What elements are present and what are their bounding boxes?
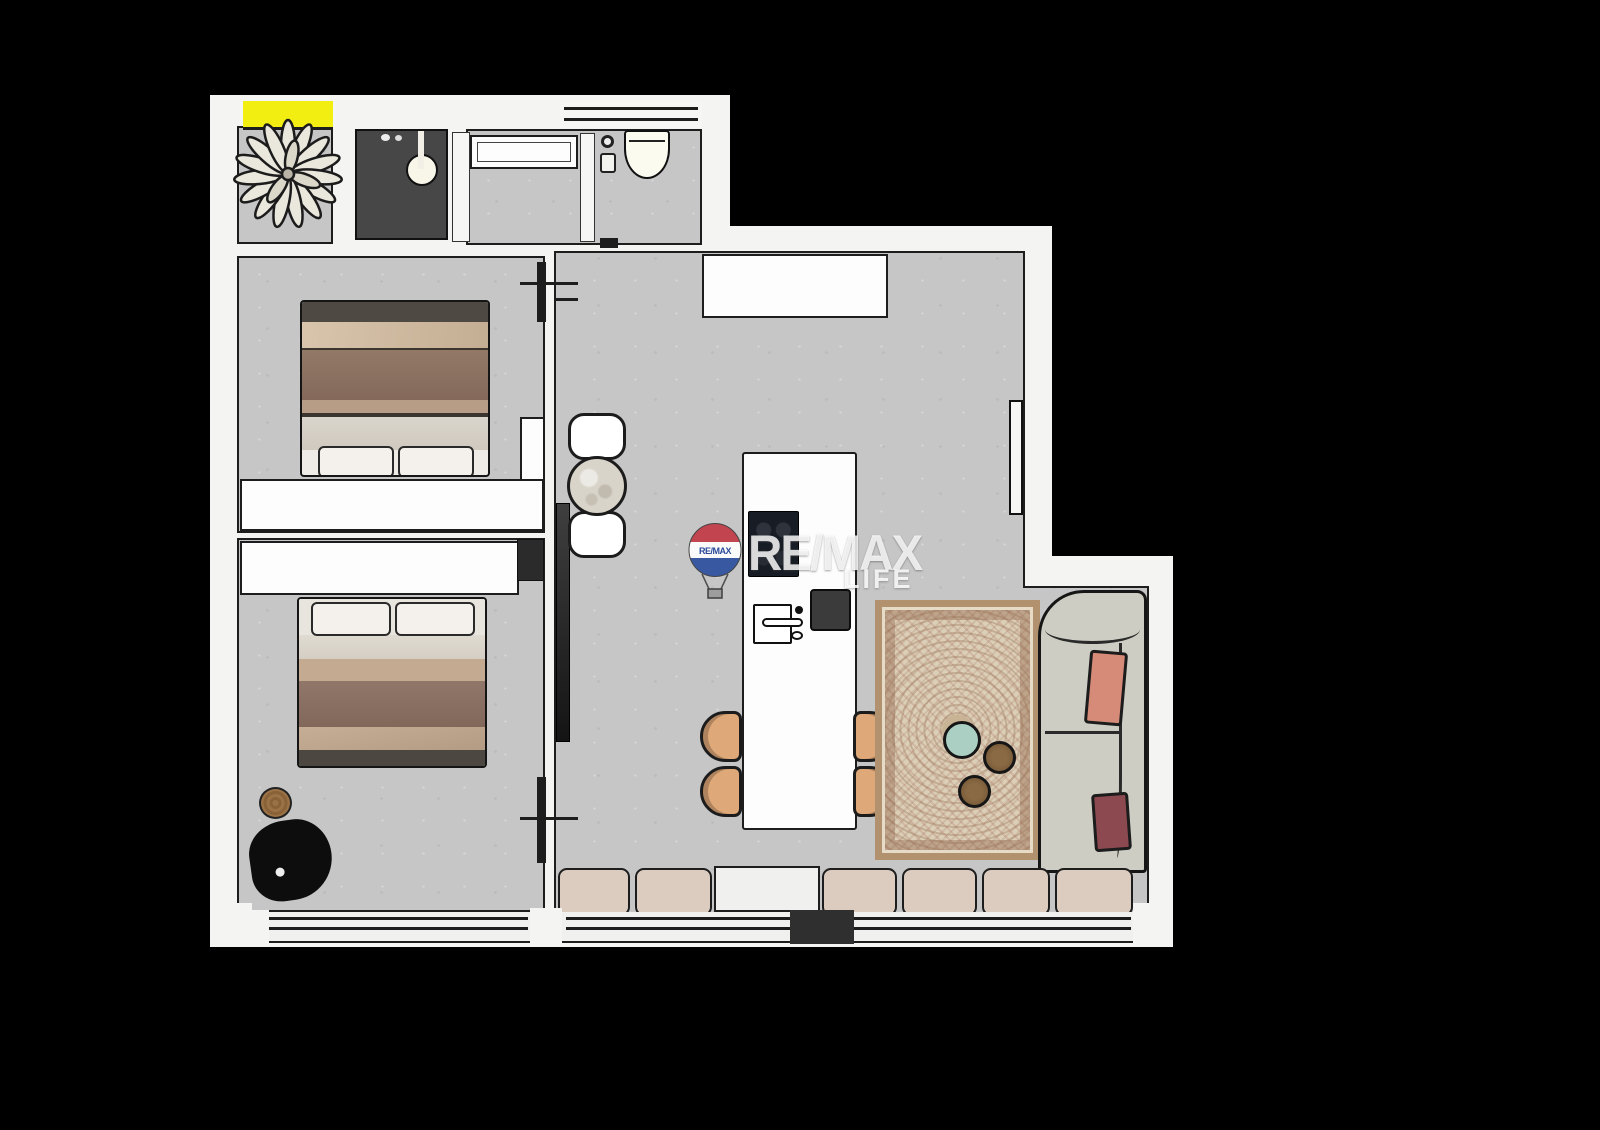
faucet-icon bbox=[418, 131, 424, 169]
vanity-unit bbox=[355, 129, 448, 240]
bed-1 bbox=[300, 300, 490, 477]
soap-dot bbox=[395, 135, 402, 141]
bed-headboard bbox=[302, 302, 488, 322]
bedroom2-door-swing-mark bbox=[520, 817, 578, 820]
bathroom-window bbox=[560, 101, 702, 128]
window-mullion bbox=[530, 908, 562, 944]
floor-cushion bbox=[902, 868, 977, 916]
toilet-roll-icon bbox=[601, 135, 614, 148]
floor-cushion bbox=[558, 868, 630, 916]
bed-sheet bbox=[299, 659, 485, 681]
sofa-pillow-maroon bbox=[1091, 792, 1132, 852]
sofa-seat-divider bbox=[1045, 731, 1120, 734]
kitchen-counter bbox=[702, 254, 888, 318]
wall-corner-pillar bbox=[210, 903, 252, 947]
bed-pillow bbox=[318, 446, 394, 477]
bed-footboard bbox=[299, 750, 485, 766]
bed-fold bbox=[302, 400, 488, 413]
window-glass-line bbox=[251, 917, 528, 920]
bed-pillow bbox=[311, 602, 391, 636]
bathtub bbox=[470, 135, 578, 169]
wardrobe-column bbox=[520, 417, 545, 481]
window-band-bedroom bbox=[247, 912, 532, 943]
beanbag-button bbox=[275, 867, 285, 877]
bed-blanket bbox=[299, 681, 485, 727]
wardrobe-bedroom1 bbox=[240, 479, 544, 531]
side-stool bbox=[259, 787, 292, 819]
floor-cushion bbox=[635, 868, 712, 916]
sofa-armrest-line bbox=[1045, 615, 1140, 644]
bar-stool bbox=[700, 711, 742, 762]
kitchen-island bbox=[742, 452, 857, 830]
bedroom1-door-swing-mark bbox=[520, 282, 578, 285]
coffee-table-mint bbox=[943, 721, 981, 759]
window-glass-line bbox=[564, 107, 698, 110]
watermark-sub-text: LIFE bbox=[843, 564, 914, 595]
sofa-pillow-salmon bbox=[1084, 649, 1128, 726]
bed-sheet bbox=[302, 322, 488, 348]
balcony-door-threshold bbox=[790, 910, 854, 944]
coffee-table-wood bbox=[983, 741, 1016, 774]
window-glass-line bbox=[251, 927, 528, 930]
shower-partition bbox=[452, 132, 470, 242]
wall-corner-pillar bbox=[1133, 903, 1173, 947]
bar-stool bbox=[700, 766, 742, 817]
kitchen-wall-mark bbox=[556, 298, 578, 301]
faucet-knob bbox=[795, 606, 803, 614]
sofa bbox=[1038, 590, 1147, 873]
floor-cushion bbox=[1055, 868, 1133, 916]
glass-divider bbox=[580, 133, 595, 242]
bed-quilt bbox=[299, 635, 485, 659]
bed-2 bbox=[297, 597, 487, 768]
floorplan-canvas: RE/MAX RE/MAX LIFE bbox=[0, 0, 1600, 1130]
wardrobe-bedroom2 bbox=[240, 541, 519, 595]
wardrobe-dark-cabinet bbox=[517, 539, 544, 581]
bathroom-accessory bbox=[600, 153, 616, 173]
dining-chair bbox=[568, 413, 626, 460]
faucet-drain bbox=[791, 631, 803, 640]
plant-icon bbox=[232, 112, 344, 230]
door-swing-area bbox=[714, 866, 820, 912]
remax-balloon-logo: RE/MAX bbox=[686, 523, 744, 603]
dining-chair bbox=[568, 511, 626, 558]
bedroom2-door-leaf bbox=[537, 777, 546, 863]
bed-pillow bbox=[398, 446, 474, 477]
bed-blanket bbox=[302, 348, 488, 400]
island-appliance bbox=[810, 589, 851, 631]
window-glass-line bbox=[564, 118, 698, 121]
bedroom1-door-leaf bbox=[537, 262, 546, 322]
dining-table bbox=[567, 456, 627, 516]
radiator bbox=[1009, 400, 1023, 515]
bathroom-door-mark bbox=[600, 238, 618, 248]
toilet-seat-line bbox=[629, 140, 665, 142]
coffee-table-wood bbox=[958, 775, 991, 808]
floor-cushion bbox=[822, 868, 897, 916]
bathtub-basin bbox=[477, 142, 571, 162]
sink-faucet-icon bbox=[762, 618, 803, 627]
bed-pillow bbox=[395, 602, 475, 636]
bed-fold bbox=[299, 727, 485, 750]
floor-cushion bbox=[982, 868, 1050, 916]
soap-dot bbox=[381, 134, 390, 141]
balloon-text: RE/MAX bbox=[699, 546, 731, 556]
